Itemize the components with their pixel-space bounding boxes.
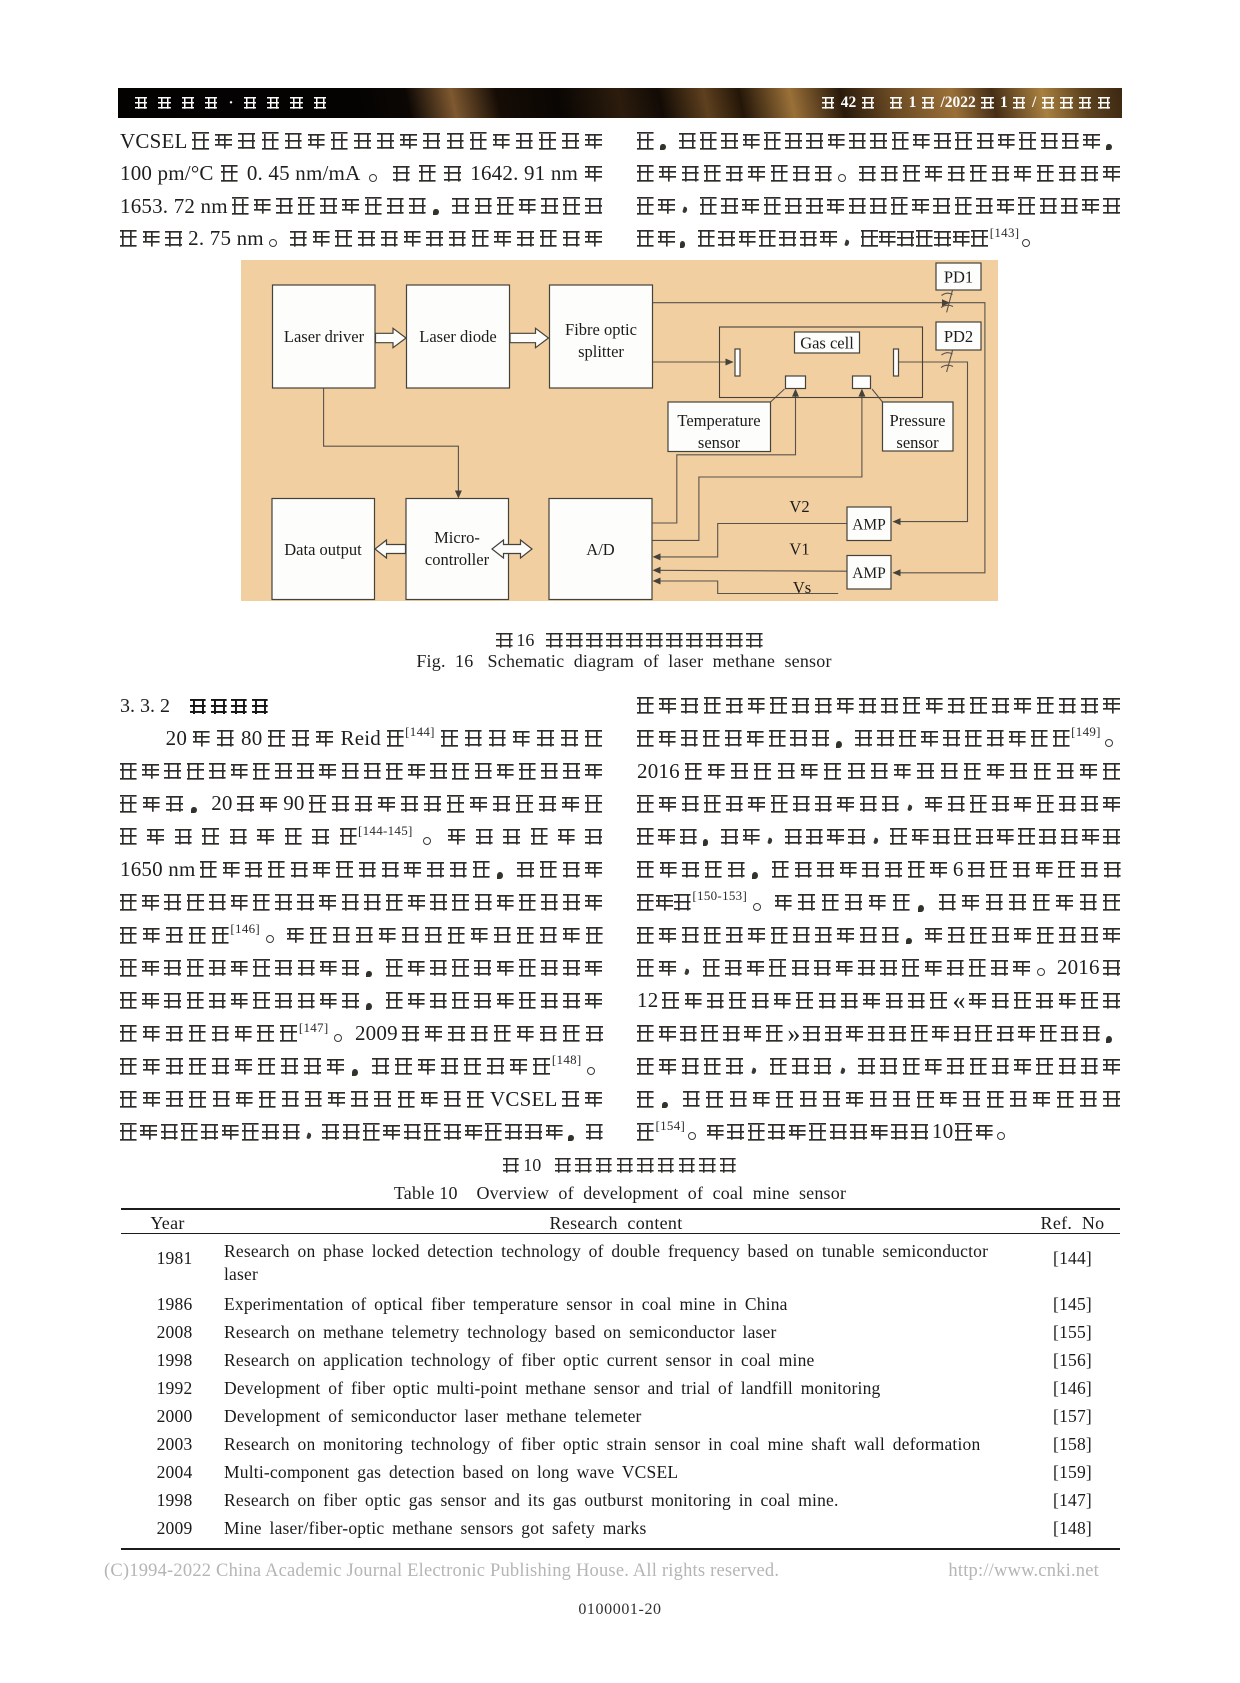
svg-text:PD2: PD2 <box>944 327 973 346</box>
svg-text:PD1: PD1 <box>944 268 973 287</box>
svg-text:splitter: splitter <box>578 342 624 361</box>
svg-text:sensor: sensor <box>698 433 741 452</box>
svg-text:Gas cell: Gas cell <box>800 334 854 353</box>
svg-text:Laser driver: Laser driver <box>284 327 365 346</box>
svg-text:AMP: AMP <box>852 565 886 582</box>
svg-text:Pressure: Pressure <box>890 411 946 430</box>
svg-text:Data output: Data output <box>284 540 362 559</box>
svg-text:V1: V1 <box>789 540 809 559</box>
svg-text:Laser diode: Laser diode <box>419 327 496 346</box>
svg-text:controller: controller <box>425 550 490 569</box>
svg-text:Temperature: Temperature <box>677 411 760 430</box>
svg-text:Fibre optic: Fibre optic <box>565 320 637 339</box>
svg-text:A/D: A/D <box>586 540 615 559</box>
svg-text:Micro-: Micro- <box>434 528 480 547</box>
svg-text:sensor: sensor <box>896 433 939 452</box>
svg-text:V2: V2 <box>789 497 809 516</box>
svg-text:Vs: Vs <box>793 578 811 597</box>
svg-text:AMP: AMP <box>852 517 886 534</box>
